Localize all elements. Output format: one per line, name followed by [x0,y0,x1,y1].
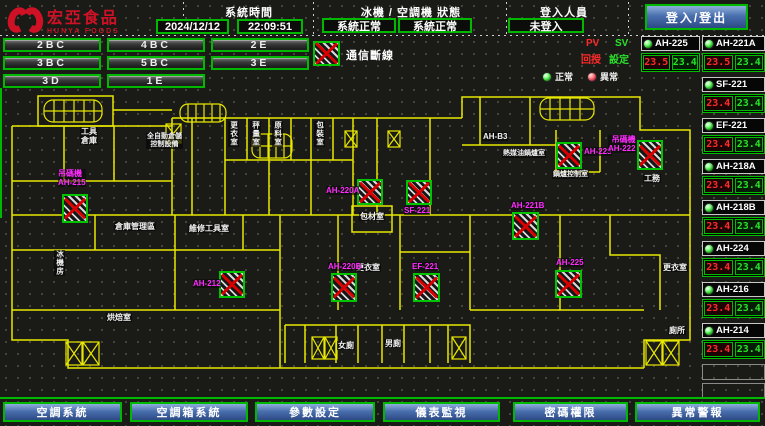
unit-readings: 23.423.4 [702,340,765,359]
comm-loss-marker-ah-220a[interactable] [357,179,383,205]
units-column: AH-221A 23.523.4 SF-221 23.423.4 EF-221 … [702,36,765,402]
unit-group-sf-221: SF-221 23.423.4 [702,77,765,113]
unit-button[interactable]: SF-221 [702,77,765,92]
room-label: 包裝室 [314,121,325,147]
comm-loss-marker-ah-220b[interactable] [331,273,357,302]
logo-subtitle: HUNYA FOODS [47,28,120,35]
unit-button[interactable]: AH-225 [641,36,700,51]
room-label: 冰機房 [54,250,65,276]
ahu-status-value: 系統正常 [398,18,472,33]
room-label: 工務 [643,174,661,183]
sv-value: 23.4 [735,55,764,70]
unit-label: AH-214 [716,325,749,336]
unit-label: AH-224 [716,243,749,254]
chiller-status-value: 系統正常 [322,18,396,33]
unit-group-ef-221: EF-221 23.423.4 [702,118,765,154]
unit-readings: 23.423.4 [702,217,765,236]
unit-label: AH-225 [655,38,688,49]
unit-group-ah-224: AH-224 23.423.4 [702,241,765,277]
unit-button[interactable]: AH-221A [702,36,765,51]
comm-loss-marker-ah-212[interactable] [219,271,245,298]
marker-label: SF-221 [404,206,430,215]
marker-label: 吊碼機AH-215 [58,169,86,187]
abnormal-legend: 異常 [587,70,618,83]
unit-readings: 23.423.4 [702,299,765,318]
nav-button-ahu-system[interactable]: 空調箱系統 [130,402,248,422]
room-label: 倉庫管理區 [114,222,156,231]
room-label: 烘焙室 [106,313,132,322]
pv-desc-label: 回授 [581,51,601,66]
nav-top-border [0,397,765,399]
comm-loss-legend-icon [313,41,340,66]
hmi-screen: 宏亞食品 HUNYA FOODS 系統時間 2024/12/12 22:09:5… [0,0,765,426]
floor-button-2e[interactable]: 2E [211,38,309,52]
unit-group-ah-218a: AH-218A 23.423.4 [702,159,765,195]
nav-button-param-setting[interactable]: 參數設定 [255,402,375,422]
room-label: 包材室 [359,212,385,221]
unit-label: AH-216 [716,284,749,295]
pv-value: 23.4 [704,342,733,357]
unit-readings: 23.523.4 [702,53,765,72]
room-label: 女廁 [337,341,355,350]
unit-status-led-icon [704,244,714,254]
unit-label: AH-218B [716,202,756,213]
comm-loss-marker-sf-221[interactable] [406,180,432,205]
unit-label: AH-221A [716,38,756,49]
pv-legend-label: PV [586,38,599,49]
nav-button-ac-system[interactable]: 空調系統 [3,402,122,422]
marker-label: AH-212 [193,279,221,288]
unit-status-led-icon [704,121,714,131]
unit-readings: 23.423.4 [702,135,765,154]
room-label: 更衣室 [662,263,688,272]
unit-readings: 23.423.4 [702,94,765,113]
marker-label: AH-220A [326,186,359,195]
system-date-value: 2024/12/12 [156,19,229,34]
comm-loss-marker-ah-222[interactable] [637,140,663,170]
comm-loss-marker-ah-221b[interactable] [512,212,539,240]
pv-value: 23.5 [704,55,733,70]
sv-value: 23.4 [735,342,764,357]
room-label: 廁所 [668,326,686,335]
system-time-label: 系統時間 [186,4,312,20]
unit-button[interactable]: EF-221 [702,118,765,133]
sv-desc-label: 設定 [609,51,629,66]
unit-readings: 23.423.4 [702,176,765,195]
room-label: 熱媒油鍋爐室 [502,150,546,158]
abnormal-legend-label: 異常 [600,70,618,83]
unit-group-ah-225: AH-225 23.5 23.4 [641,36,700,72]
unit-group-ah-216: AH-216 23.423.4 [702,282,765,318]
unit-status-led-icon [704,80,714,90]
login-status-value: 未登入 [508,18,584,33]
unit-label: AH-218A [716,161,756,172]
marker-label: AH-225 [556,258,584,267]
unit-button[interactable]: AH-216 [702,282,765,297]
empty-unit-slot [702,364,765,380]
pv-value: 23.4 [704,178,733,193]
unit-group-ah-218b: AH-218B 23.423.4 [702,200,765,236]
unit-button[interactable]: AH-224 [702,241,765,256]
unit-status-led-icon [704,162,714,172]
unit-label: SF-221 [716,79,747,90]
marker-label: EF-221 [412,262,438,271]
active-floor-indicator [0,88,2,218]
pv-value: 23.4 [704,219,733,234]
unit-group-ah-221a: AH-221A 23.523.4 [702,36,765,72]
unit-button[interactable]: AH-218B [702,200,765,215]
sv-value: 23.4 [672,55,699,70]
sv-value: 23.4 [735,219,764,234]
comm-loss-legend-label: 通信斷線 [346,47,394,63]
logo-title: 宏亞食品 [47,4,120,28]
system-time-value: 22:09:51 [237,19,303,34]
plan-walls [12,96,690,368]
abnormal-led-icon [587,72,597,82]
pv-value: 23.4 [704,96,733,111]
room-label: 更衣室 [228,121,239,147]
pv-value: 23.4 [704,137,733,152]
unit-status-led-icon [704,203,714,213]
pv-value: 23.4 [704,301,733,316]
normal-led-icon [542,72,552,82]
unit-status-led-icon [704,39,714,49]
unit-status-led-icon [643,39,653,49]
unit-readings: 23.5 23.4 [641,53,700,72]
unit-status-led-icon [704,326,714,336]
nav-button-password[interactable]: 密碼權限 [513,402,628,422]
comm-loss-marker-ah-215[interactable] [62,194,88,223]
comm-loss-marker-ef-221[interactable] [413,273,440,302]
room-label: 維修工具室 [188,224,230,233]
sv-legend-label: SV [615,38,628,49]
room-label: 全自動倉儲控制設備 [146,133,183,149]
unit-label: EF-221 [716,120,747,131]
comm-loss-marker-ah-223[interactable] [556,142,582,169]
company-logo: 宏亞食品 HUNYA FOODS [8,4,120,35]
unit-group-ah-214: AH-214 23.423.4 [702,323,765,359]
unit-button[interactable]: AH-214 [702,323,765,338]
room-label: 原料室 [272,121,283,147]
room-label: 秤量室 [250,121,261,147]
marker-label: AH-221B [511,201,544,210]
floor-button-1e[interactable]: 1E [107,74,205,88]
nav-button-meter-monitor[interactable]: 儀表監視 [383,402,500,422]
comm-loss-marker-ah-225[interactable] [555,270,582,298]
floor-button-5bc[interactable]: 5BC [107,56,205,70]
sv-value: 23.4 [735,301,764,316]
louver-icon [66,124,679,365]
sv-value: 23.4 [735,96,764,111]
room-label: 工具倉庫 [80,127,98,145]
floor-button-3e[interactable]: 3E [211,56,309,70]
unit-button[interactable]: AH-218A [702,159,765,174]
floor-button-2bc[interactable]: 2BC [3,38,101,52]
normal-legend: 正常 [542,70,573,83]
pv-value: 23.4 [704,260,733,275]
pv-value: 23.5 [643,55,670,70]
login-logout-button[interactable]: 登入/登出 [645,4,748,30]
marker-label: 吊碼機AH-222 [608,135,636,153]
room-label: 鍋爐控制室 [552,171,589,179]
floor-button-3bc[interactable]: 3BC [3,56,101,70]
normal-legend-label: 正常 [555,70,573,83]
unit-readings: 23.423.4 [702,258,765,277]
marker-label: AH-220B [328,262,361,271]
room-label: 男廁 [384,339,402,348]
sv-value: 23.4 [735,178,764,193]
sv-value: 23.4 [735,137,764,152]
floor-button-3d[interactable]: 3D [3,74,101,88]
sv-value: 23.4 [735,260,764,275]
nav-button-alarm[interactable]: 異常警報 [635,402,760,422]
room-label: AH-B3 [482,132,508,141]
unit-status-led-icon [704,285,714,295]
floor-button-4bc[interactable]: 4BC [107,38,205,52]
